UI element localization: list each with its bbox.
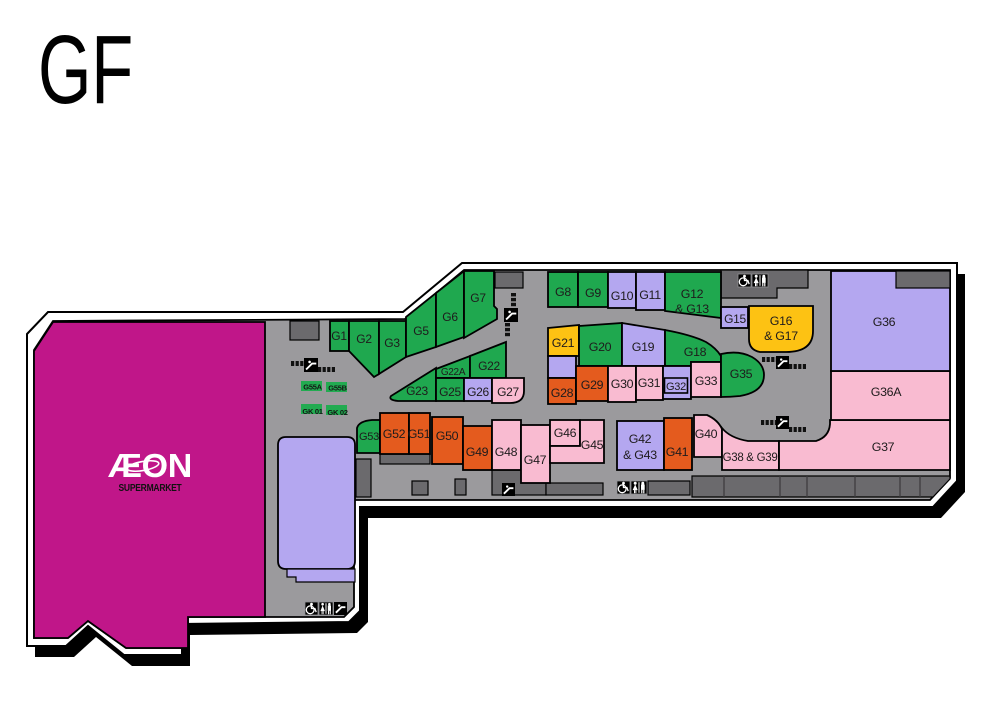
svg-text:G52: G52	[383, 427, 406, 441]
svg-text:G27: G27	[497, 385, 519, 399]
svg-text:G28: G28	[551, 386, 574, 400]
svg-text:G23: G23	[406, 384, 428, 398]
svg-text:G15: G15	[724, 312, 746, 326]
svg-text:G25: G25	[439, 385, 461, 399]
svg-text:G53: G53	[359, 431, 379, 443]
svg-text:& G13: & G13	[675, 302, 709, 316]
svg-text:G55A: G55A	[303, 383, 322, 392]
svg-text:G51: G51	[408, 427, 431, 441]
svg-text:G41: G41	[666, 445, 689, 459]
svg-text:G35: G35	[730, 367, 753, 381]
svg-text:& G43: & G43	[623, 448, 657, 462]
svg-text:G20: G20	[589, 340, 612, 354]
svg-text:G31: G31	[638, 376, 661, 390]
svg-text:G47: G47	[524, 453, 547, 467]
svg-text:G37: G37	[872, 440, 895, 454]
svg-text:G9: G9	[585, 286, 601, 300]
svg-text:G45: G45	[581, 438, 604, 452]
svg-text:G49: G49	[466, 445, 489, 459]
svg-text:G42: G42	[629, 432, 652, 446]
svg-text:GK 02: GK 02	[327, 408, 347, 417]
svg-text:GK 01: GK 01	[302, 407, 322, 416]
svg-text:G33: G33	[695, 374, 718, 388]
svg-text:G19: G19	[632, 340, 655, 354]
svg-text:G22: G22	[478, 359, 500, 373]
svg-text:G16: G16	[770, 314, 793, 328]
svg-text:GF: GF	[38, 15, 133, 124]
svg-text:G55B: G55B	[328, 384, 347, 393]
svg-text:G36A: G36A	[871, 385, 903, 399]
svg-text:G48: G48	[495, 445, 518, 459]
svg-text:G3: G3	[384, 336, 400, 350]
svg-text:G12: G12	[681, 287, 704, 301]
svg-text:G2: G2	[356, 332, 372, 346]
svg-text:G32: G32	[666, 381, 686, 393]
svg-text:G5: G5	[413, 324, 429, 338]
svg-text:G40: G40	[695, 427, 718, 441]
svg-text:& G17: & G17	[764, 329, 798, 343]
svg-text:ÆON: ÆON	[108, 447, 192, 484]
svg-text:G29: G29	[581, 378, 604, 392]
svg-text:SUPERMARKET: SUPERMARKET	[119, 482, 183, 494]
svg-text:G7: G7	[470, 291, 486, 305]
svg-text:G1: G1	[331, 329, 347, 343]
svg-text:G18: G18	[684, 345, 707, 359]
svg-text:G46: G46	[554, 426, 577, 440]
svg-text:G26: G26	[467, 385, 489, 399]
svg-text:G38 & G39: G38 & G39	[723, 452, 778, 464]
svg-text:G11: G11	[639, 288, 661, 302]
svg-text:G50: G50	[436, 429, 459, 443]
svg-text:G36: G36	[873, 315, 896, 329]
svg-text:G6: G6	[442, 310, 458, 324]
svg-text:G21: G21	[552, 336, 575, 350]
svg-text:G22A: G22A	[441, 367, 466, 378]
svg-text:G8: G8	[555, 285, 571, 299]
svg-text:G10: G10	[611, 289, 634, 303]
svg-text:G30: G30	[611, 377, 634, 391]
